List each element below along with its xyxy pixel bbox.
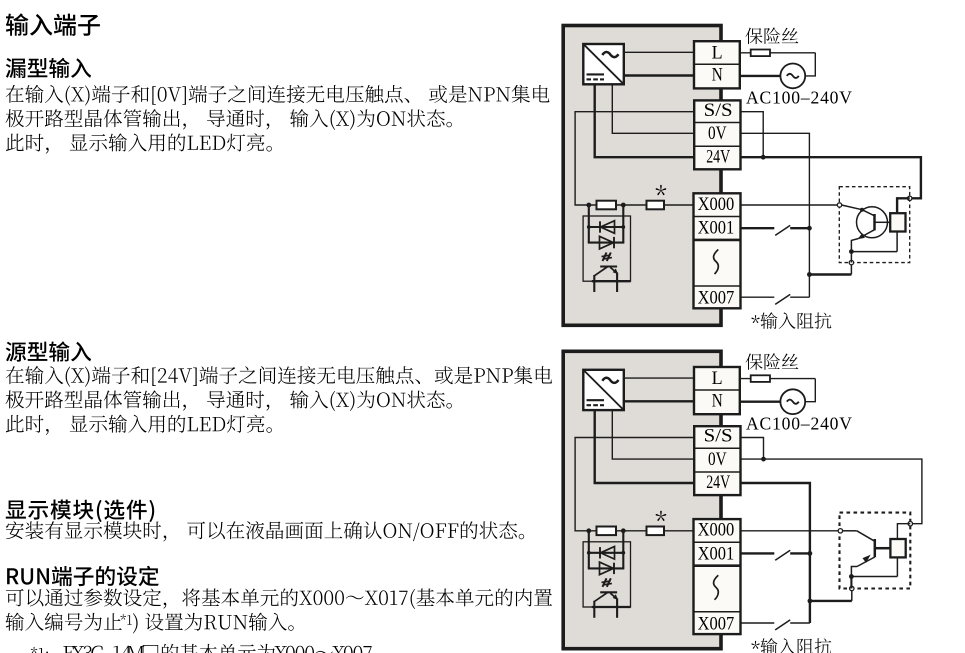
svg-text:0V: 0V (708, 449, 727, 470)
svg-text:AC100–240V: AC100–240V (746, 413, 852, 433)
svg-text:AC100–240V: AC100–240V (746, 88, 852, 108)
svg-text:L: L (712, 42, 723, 63)
svg-text:0V: 0V (708, 123, 727, 144)
svg-text:24V: 24V (706, 146, 730, 167)
svg-text:X001: X001 (698, 543, 735, 564)
svg-text:S/S: S/S (704, 100, 733, 121)
svg-text:X000: X000 (698, 194, 735, 215)
svg-text:24V: 24V (706, 472, 730, 493)
svg-text:N: N (712, 391, 723, 412)
svg-text:X001: X001 (698, 218, 735, 239)
svg-text:L: L (712, 368, 723, 389)
svg-text:X000: X000 (698, 520, 735, 541)
svg-text:N: N (712, 65, 723, 86)
svg-text:S/S: S/S (704, 426, 733, 447)
svg-text:X007: X007 (698, 288, 735, 309)
svg-text:X007: X007 (698, 613, 735, 634)
